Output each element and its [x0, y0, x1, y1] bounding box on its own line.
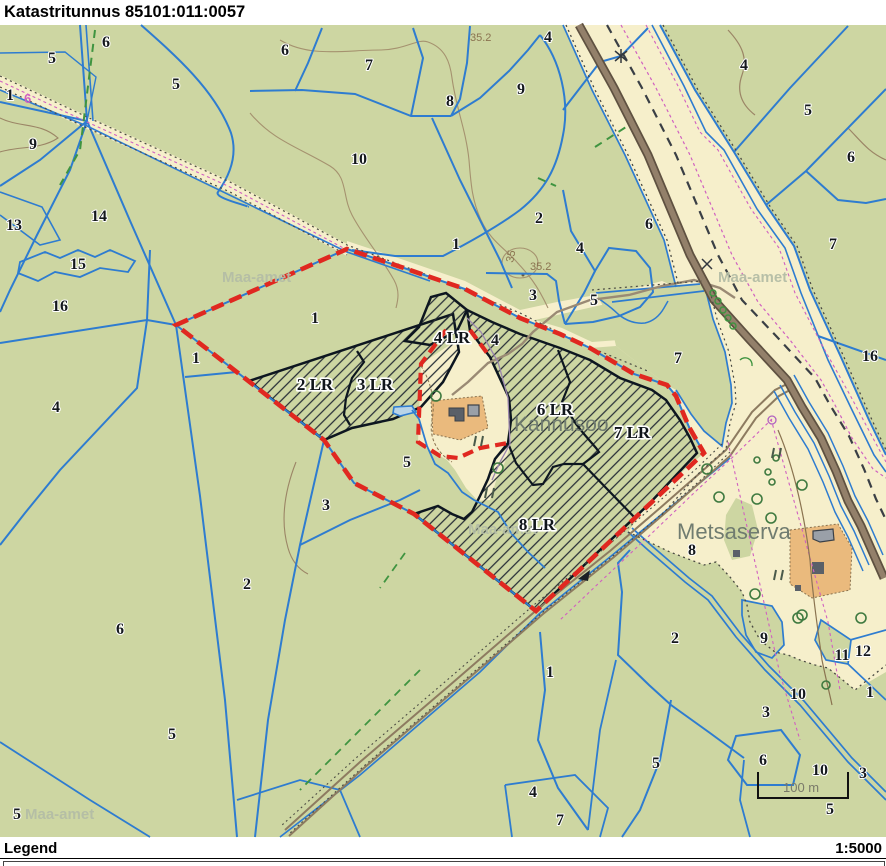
svg-text:3: 3 — [859, 765, 867, 782]
svg-text:4: 4 — [740, 57, 748, 74]
svg-text:2: 2 — [535, 210, 543, 227]
svg-text:35.2: 35.2 — [470, 32, 491, 44]
svg-text:13: 13 — [6, 217, 22, 234]
svg-text:6: 6 — [645, 216, 653, 233]
svg-text:10: 10 — [351, 151, 367, 168]
svg-text:10: 10 — [790, 686, 806, 703]
svg-text:11: 11 — [834, 647, 849, 664]
svg-text:7: 7 — [556, 812, 564, 829]
svg-text:9: 9 — [760, 630, 768, 647]
svg-text:2 LR: 2 LR — [297, 375, 334, 394]
svg-text:5: 5 — [13, 806, 21, 823]
svg-text:7: 7 — [674, 350, 682, 367]
svg-text:5: 5 — [652, 755, 660, 772]
svg-text:1: 1 — [866, 684, 874, 701]
svg-text:5: 5 — [804, 102, 812, 119]
svg-text:6: 6 — [281, 42, 289, 59]
svg-text:9: 9 — [29, 136, 37, 153]
svg-text:4: 4 — [491, 332, 499, 349]
svg-text:1: 1 — [452, 236, 460, 253]
svg-text:8 LR: 8 LR — [519, 515, 556, 534]
svg-text:9: 9 — [517, 81, 525, 98]
svg-text:35: 35 — [504, 249, 518, 263]
svg-text:1: 1 — [192, 350, 200, 367]
svg-text:4: 4 — [544, 29, 552, 46]
svg-text:6: 6 — [847, 149, 855, 166]
svg-text:6: 6 — [759, 752, 767, 769]
svg-text:6: 6 — [24, 91, 31, 106]
svg-text:3 LR: 3 LR — [357, 375, 394, 394]
svg-text:5: 5 — [172, 76, 180, 93]
svg-text:1: 1 — [6, 87, 14, 104]
svg-text:2: 2 — [243, 576, 251, 593]
svg-text:Metsaserva: Metsaserva — [677, 519, 791, 544]
svg-text:4: 4 — [52, 399, 60, 416]
svg-text:8: 8 — [688, 542, 696, 559]
svg-text:7: 7 — [829, 236, 837, 253]
svg-text:6: 6 — [102, 34, 110, 51]
svg-text:3: 3 — [322, 497, 330, 514]
svg-text:5: 5 — [48, 50, 56, 67]
svg-text:1: 1 — [546, 664, 554, 681]
svg-text:1: 1 — [311, 310, 319, 327]
svg-text:5: 5 — [590, 292, 598, 309]
svg-text:100 m: 100 m — [783, 780, 819, 795]
svg-text:2: 2 — [671, 630, 679, 647]
svg-text:10: 10 — [812, 762, 828, 779]
svg-text:16: 16 — [862, 348, 878, 365]
svg-text:5: 5 — [403, 454, 411, 471]
svg-text:8: 8 — [446, 93, 454, 110]
svg-text:Maa-amet: Maa-amet — [25, 806, 94, 823]
svg-text:4 LR: 4 LR — [434, 328, 471, 347]
svg-text:3: 3 — [529, 287, 537, 304]
svg-text:3: 3 — [762, 704, 770, 721]
svg-text:12: 12 — [855, 643, 871, 660]
svg-text:16: 16 — [52, 298, 68, 315]
svg-text:5: 5 — [826, 801, 834, 818]
svg-text:15: 15 — [70, 256, 86, 273]
svg-text:35.2: 35.2 — [530, 261, 551, 273]
svg-text:7: 7 — [365, 57, 373, 74]
svg-text:4: 4 — [576, 240, 584, 257]
svg-text:Maa-amet: Maa-amet — [222, 269, 291, 286]
svg-text:Maa-amet: Maa-amet — [718, 269, 787, 286]
svg-text:14: 14 — [91, 208, 107, 225]
svg-text:5: 5 — [168, 726, 176, 743]
svg-text:6: 6 — [116, 621, 124, 638]
svg-text:4: 4 — [529, 784, 537, 801]
svg-text:6 LR: 6 LR — [537, 400, 574, 419]
svg-text:7 LR: 7 LR — [614, 423, 651, 442]
